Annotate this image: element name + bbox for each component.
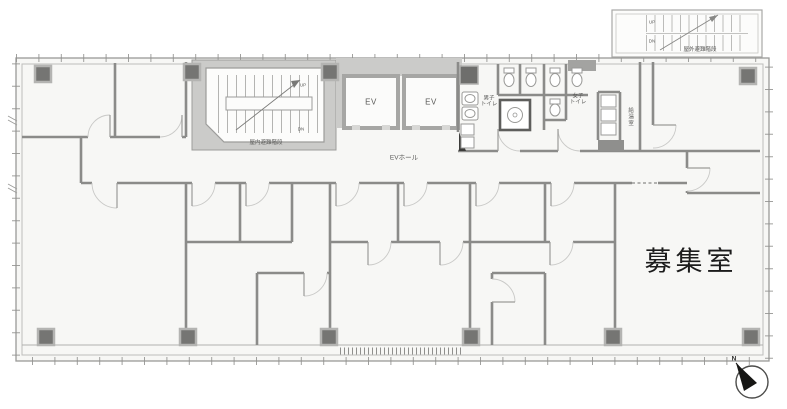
ev1-label: EV bbox=[365, 97, 377, 106]
down-label-outdoor: DN bbox=[649, 38, 656, 43]
ev-hall-label: EVホール bbox=[390, 154, 418, 161]
ev2-label: EV bbox=[425, 97, 437, 106]
mens-toilet-label: 男子 トイレ bbox=[481, 96, 498, 109]
north-arrow-icon bbox=[736, 363, 768, 398]
up-label-outdoor: UP bbox=[649, 19, 655, 24]
kitchenette-label: 給湯室 bbox=[627, 107, 633, 127]
down-label-indoor: DN bbox=[298, 126, 305, 131]
up-label-indoor: UP bbox=[300, 82, 306, 87]
floorplan-drawing bbox=[0, 0, 787, 409]
outdoor-stairs-label: 屋外避難階段 bbox=[683, 47, 716, 53]
north-label: N bbox=[732, 355, 737, 362]
floorplan: EV EV EVホール 男子 トイレ 女子 トイレ 給湯室 屋内避難階段 UP … bbox=[0, 0, 787, 409]
indoor-stairs-label: 屋内避難階段 bbox=[249, 140, 282, 146]
vacant-room-label: 募集室 bbox=[645, 246, 738, 277]
womens-toilet-label: 女子 トイレ bbox=[570, 94, 587, 107]
